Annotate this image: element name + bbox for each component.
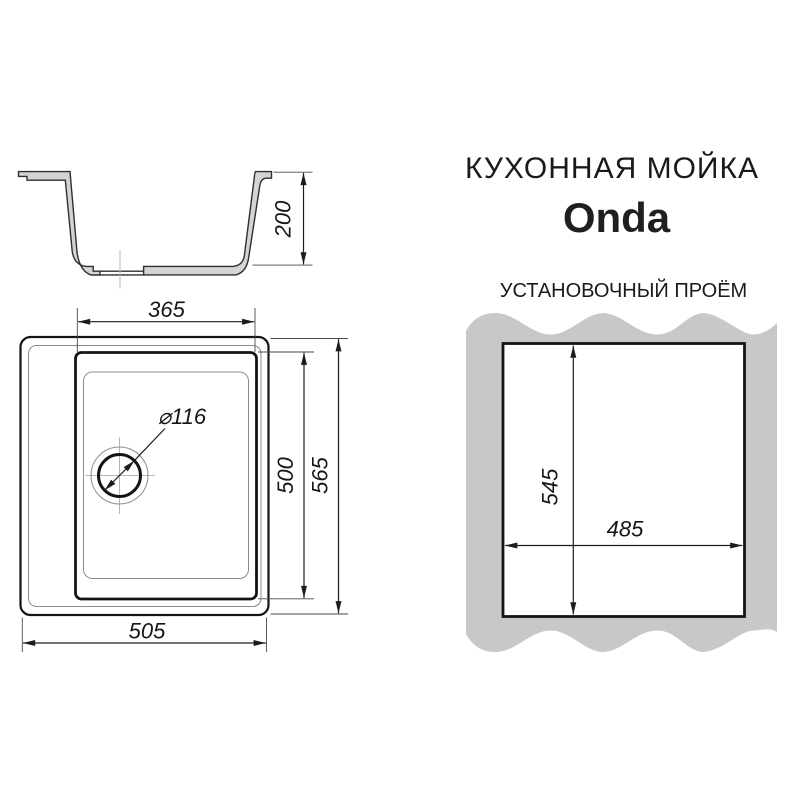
dim-depth-label: 200 <box>271 200 296 238</box>
dim-overall-width-label: 505 <box>129 619 166 644</box>
cross-section-view: 200 <box>19 172 313 289</box>
dimension-depth: 200 <box>253 172 313 265</box>
product-category-title: КУХОННАЯ МОЙКА <box>437 153 787 185</box>
cutout-view: 545 485 <box>466 313 777 652</box>
top-view: ⌀116 365 500 <box>21 297 349 652</box>
dim-overall-length-label: 565 <box>308 456 333 493</box>
section-right-wall <box>144 172 272 275</box>
cutout-section-title: УСТАНОВОЧНЫЙ ПРОЁМ <box>440 281 800 302</box>
section-left-wall <box>19 172 101 275</box>
product-name: Onda <box>440 196 793 240</box>
sink-drawing-page: 200 ⌀116 <box>0 0 800 800</box>
dim-cutout-length-label: 545 <box>538 468 563 505</box>
dimension-overall-width: 505 <box>22 618 266 653</box>
technical-drawing: 200 ⌀116 <box>0 0 800 800</box>
dim-cutout-width-label: 485 <box>607 517 644 542</box>
dim-bowl-length-label: 500 <box>273 456 298 493</box>
dim-bowl-width-label: 365 <box>148 297 185 322</box>
dim-drain-diameter-label: ⌀116 <box>158 404 207 429</box>
